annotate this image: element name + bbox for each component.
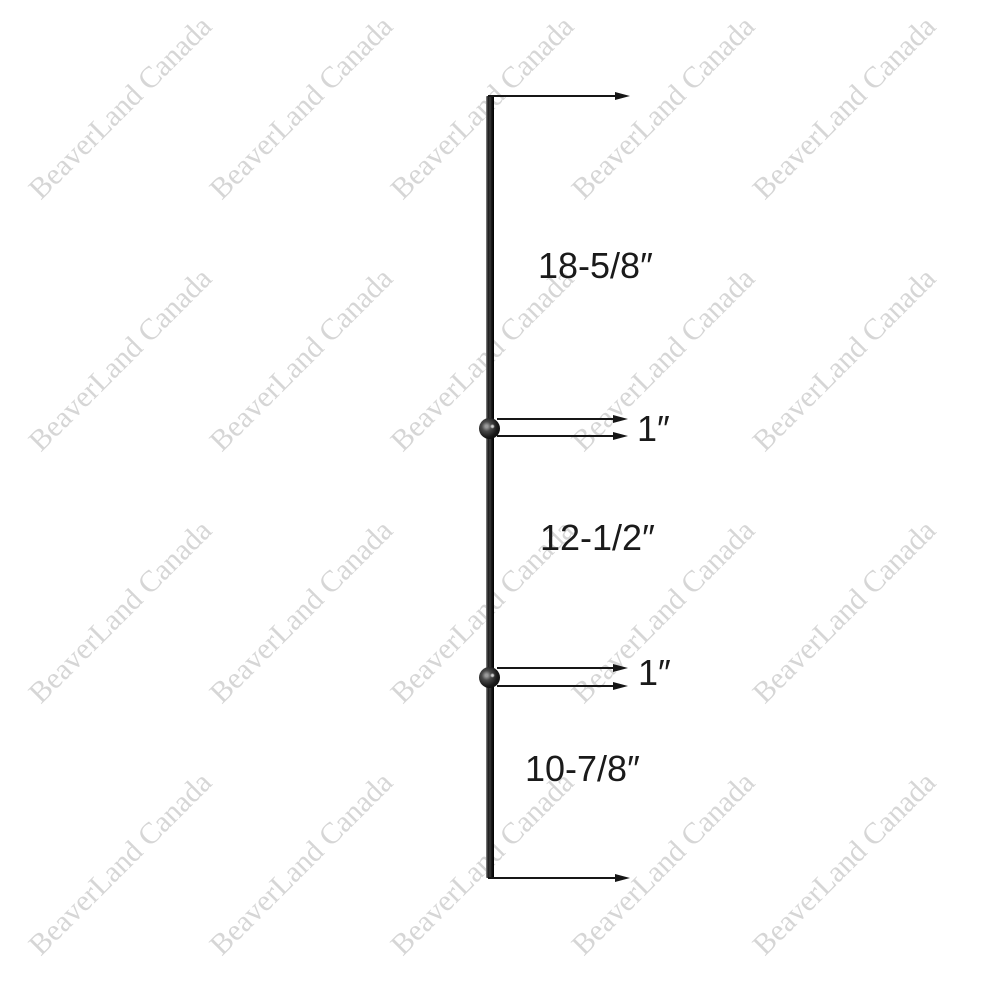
- dimension-label-middle-section: 12-1/2″: [540, 520, 655, 556]
- dimension-label-top-section: 18-5/8″: [538, 248, 653, 284]
- dimension-arrow-lower-ball-bottom: [497, 685, 613, 687]
- dimension-arrow-upper-ball-top: [497, 418, 613, 420]
- watermark-text: BeaverLand Canada: [386, 767, 580, 961]
- watermark-text: BeaverLand Canada: [567, 767, 761, 961]
- dimension-label-upper-ball: 1″: [637, 411, 670, 447]
- dimension-arrow-rod-bottom: [488, 877, 615, 879]
- watermark-text: BeaverLand Canada: [24, 515, 218, 709]
- watermark-text: BeaverLand Canada: [386, 11, 580, 205]
- watermark-text: BeaverLand Canada: [567, 11, 761, 205]
- watermark-text: BeaverLand Canada: [205, 263, 399, 457]
- watermark-text: BeaverLand Canada: [24, 11, 218, 205]
- watermark-text: BeaverLand Canada: [748, 263, 942, 457]
- watermark-text: BeaverLand Canada: [205, 515, 399, 709]
- dimension-arrow-upper-ball-bottom: [497, 435, 613, 437]
- watermark-text: BeaverLand Canada: [24, 767, 218, 961]
- dimension-arrow-lower-ball-top: [497, 667, 613, 669]
- watermark-layer: BeaverLand Canada BeaverLand Canada Beav…: [0, 0, 1000, 1000]
- product-diagram: BeaverLand Canada BeaverLand Canada Beav…: [0, 0, 1000, 1000]
- dimension-arrow-rod-top: [488, 95, 615, 97]
- watermark-text: BeaverLand Canada: [24, 263, 218, 457]
- dimension-label-bottom-section: 10-7/8″: [525, 751, 640, 787]
- watermark-text: BeaverLand Canada: [205, 11, 399, 205]
- watermark-text: BeaverLand Canada: [748, 515, 942, 709]
- watermark-text: BeaverLand Canada: [748, 11, 942, 205]
- watermark-text: BeaverLand Canada: [748, 767, 942, 961]
- dimension-label-lower-ball: 1″: [638, 655, 671, 691]
- baluster-shaft: [486, 96, 494, 878]
- watermark-text: BeaverLand Canada: [205, 767, 399, 961]
